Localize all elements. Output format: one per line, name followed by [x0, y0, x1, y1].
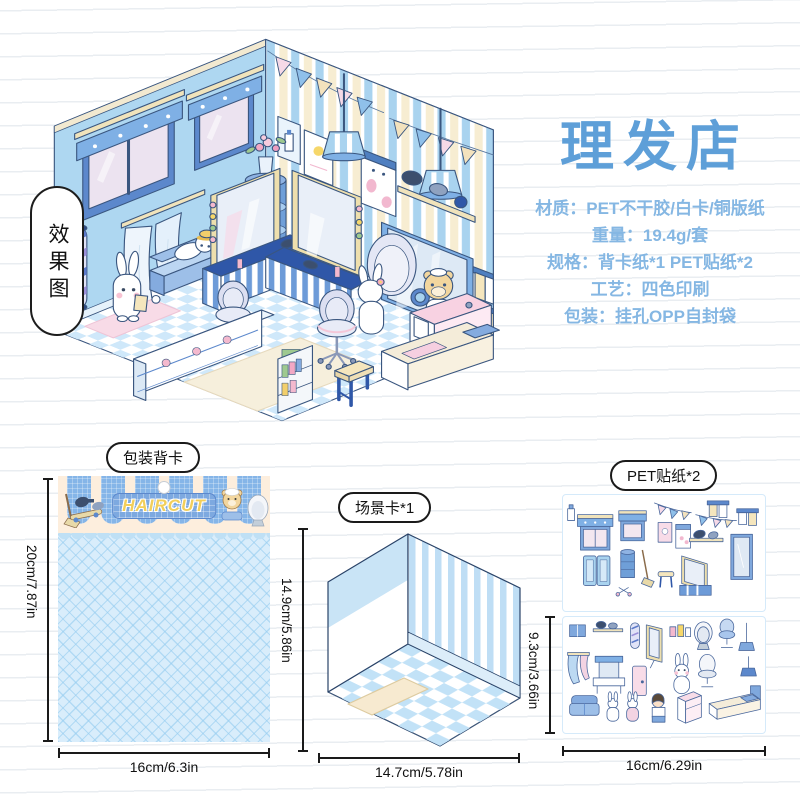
- sticker-sheet-1-svg: [563, 495, 765, 611]
- sticker-side-chair-icon: [698, 654, 716, 686]
- sticker-styling-mirror-icon: [680, 556, 711, 595]
- sticker-card-width-label: 16cm/6.29in: [626, 757, 702, 773]
- back-card-tag: 包装背卡: [106, 442, 200, 473]
- sticker-vanity-icon: [593, 656, 624, 693]
- scene-card: [318, 524, 530, 754]
- product-title: 理发店: [500, 102, 800, 181]
- haircut-banner-text: HAIRCUT: [122, 496, 206, 515]
- sticker-cabinet-icon: [678, 692, 702, 723]
- sticker-towel-rack-2-icon: [737, 509, 759, 526]
- effect-image-tag: 效果图: [30, 186, 84, 336]
- back-card-width-label: 16cm/6.3in: [130, 759, 198, 775]
- product-page: 效果图: [0, 0, 800, 800]
- sticker-bottle-icon: [568, 505, 575, 521]
- barber-tools-icon: [60, 488, 108, 528]
- spec-weight: 重量：19.4g/套: [500, 222, 800, 249]
- packaging-back-card: HAIRCUT: [58, 476, 270, 742]
- sticker-barber-pole-icon: [631, 623, 640, 649]
- sticker-towel-rack-icon: [707, 501, 729, 518]
- spec-craft: 工艺：四色印刷: [500, 276, 800, 303]
- back-card-height-line: [47, 478, 49, 742]
- scene-card-tag-label: 场景卡*1: [355, 500, 414, 517]
- scene-card-width-line: [318, 757, 520, 759]
- sticker-sheet-2: [562, 616, 766, 734]
- sticker-card-width-line: [562, 750, 766, 752]
- scene-card-width-label: 14.7cm/5.78in: [375, 764, 463, 780]
- scene-card-svg: [318, 524, 530, 752]
- back-card-body: [58, 534, 270, 742]
- sticker-plunger-icon: [739, 623, 755, 651]
- sticker-poster-icon: [658, 523, 672, 543]
- sticker-tall-mirror-icon: [646, 625, 662, 668]
- salon-room-illustration: [34, 24, 534, 438]
- sticker-big-mirror-icon: [731, 534, 753, 579]
- spec-contents: 规格：背卡纸*1 PET贴纸*2: [500, 249, 800, 276]
- sticker-card-tag-label: PET贴纸*2: [627, 468, 700, 485]
- back-card-header: HAIRCUT: [58, 476, 270, 534]
- scene-card-height-label: 14.9cm/5.86in: [279, 578, 294, 663]
- sticker-curtain-icon: [568, 652, 590, 683]
- sticker-sofa-icon: [570, 696, 599, 716]
- sticker-card-height-line: [549, 616, 551, 734]
- hang-hole: [158, 481, 171, 494]
- sticker-egg-chair-icon: [694, 622, 712, 650]
- scene-card-tag: 场景卡*1: [338, 492, 431, 523]
- sticker-bunny-pair-icon: [607, 692, 638, 721]
- sticker-door-icon: [583, 556, 610, 585]
- sticker-window-2-icon: [619, 511, 647, 541]
- haircut-banner: HAIRCUT: [112, 493, 216, 519]
- sticker-window-icon: [577, 515, 612, 550]
- sticker-sheet-2-svg: [563, 617, 765, 733]
- sticker-scissors-icon: [616, 587, 631, 596]
- sticker-office-chair-icon: [719, 619, 735, 648]
- sticker-bunny-icon: [674, 653, 690, 693]
- scallop-edge: [58, 533, 270, 542]
- effect-image-tag-label: 效果图: [42, 219, 72, 304]
- back-card-height-label: 20cm/7.87in: [24, 545, 39, 619]
- sticker-bunting-icon: [654, 503, 691, 520]
- bear-and-chair-icon: [216, 486, 270, 530]
- sticker-bottles-icon: [670, 625, 691, 637]
- sticker-card-height-label: 9.3cm/3.66in: [526, 632, 541, 709]
- scene-card-height-line: [302, 528, 304, 752]
- sticker-sheet-1: [562, 494, 766, 612]
- back-card-width-line: [58, 752, 270, 754]
- salon-room-svg: [34, 24, 534, 438]
- sticker-towel-icon: [676, 524, 691, 548]
- spec-material: 材质：PET不干胶/白卡/铜版纸: [500, 195, 800, 222]
- back-card-tag-label: 包装背卡: [123, 450, 183, 467]
- sticker-broom-icon: [641, 550, 654, 587]
- sticker-dryer-shelf2-icon: [593, 621, 622, 631]
- sticker-girl-icon: [652, 694, 665, 723]
- sticker-card-tag: PET贴纸*2: [610, 460, 717, 491]
- sticker-stool-icon: [658, 572, 674, 588]
- spec-packaging: 包装：挂孔OPP自封袋: [500, 303, 800, 330]
- sticker-lamp-icon: [741, 656, 757, 676]
- sticker-corner-shelf-icon: [621, 550, 635, 578]
- sticker-dryer-shelf-icon: [690, 529, 723, 542]
- sticker-small-window-icon: [570, 625, 586, 637]
- sticker-bed-icon: [709, 686, 760, 719]
- sticker-pink-door-icon: [633, 666, 647, 695]
- product-info: 理发店 材质：PET不干胶/白卡/铜版纸 重量：19.4g/套 规格：背卡纸*1…: [500, 102, 800, 330]
- product-specs: 材质：PET不干胶/白卡/铜版纸 重量：19.4g/套 规格：背卡纸*1 PET…: [500, 195, 800, 330]
